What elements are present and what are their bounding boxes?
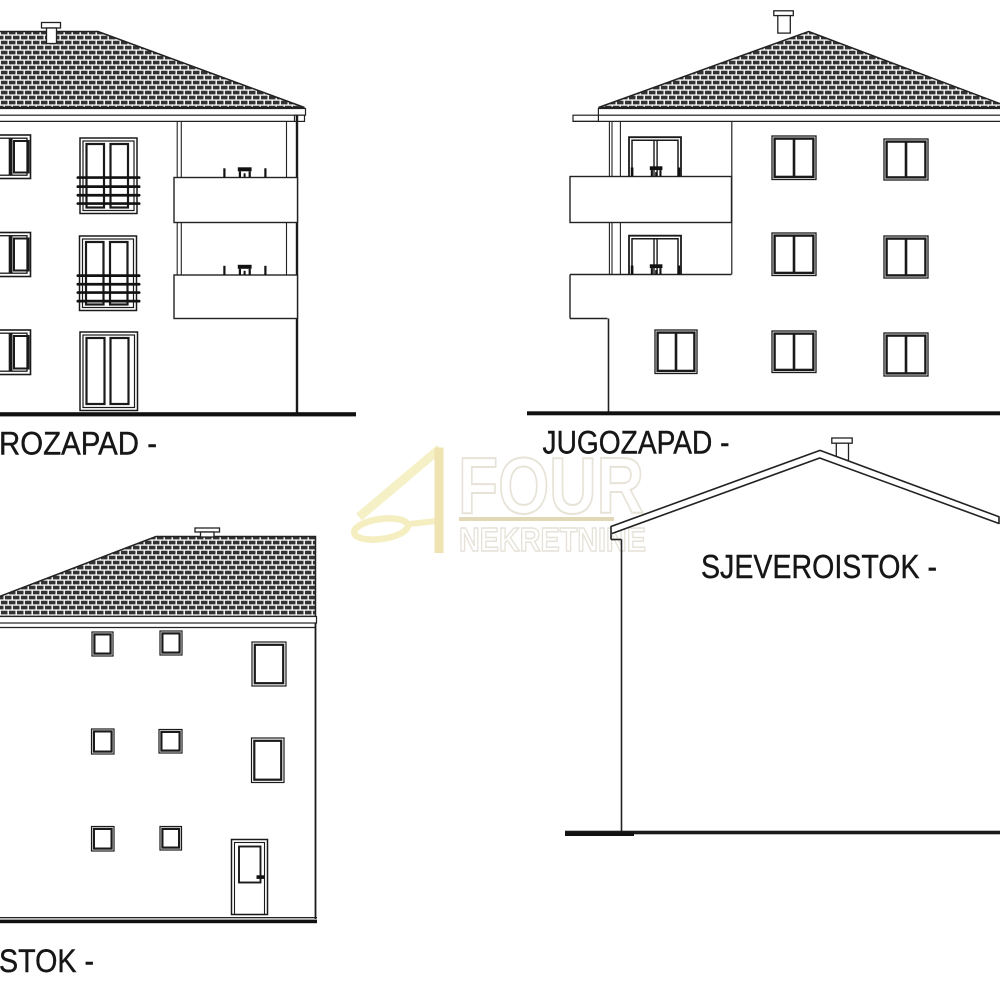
- svg-text:SJEVEROISTOK -: SJEVEROISTOK -: [701, 549, 937, 586]
- svg-text:STOK -: STOK -: [0, 943, 94, 979]
- svg-text:ROZAPAD -: ROZAPAD -: [0, 426, 157, 462]
- svg-text:JUGOZAPAD -: JUGOZAPAD -: [543, 425, 730, 461]
